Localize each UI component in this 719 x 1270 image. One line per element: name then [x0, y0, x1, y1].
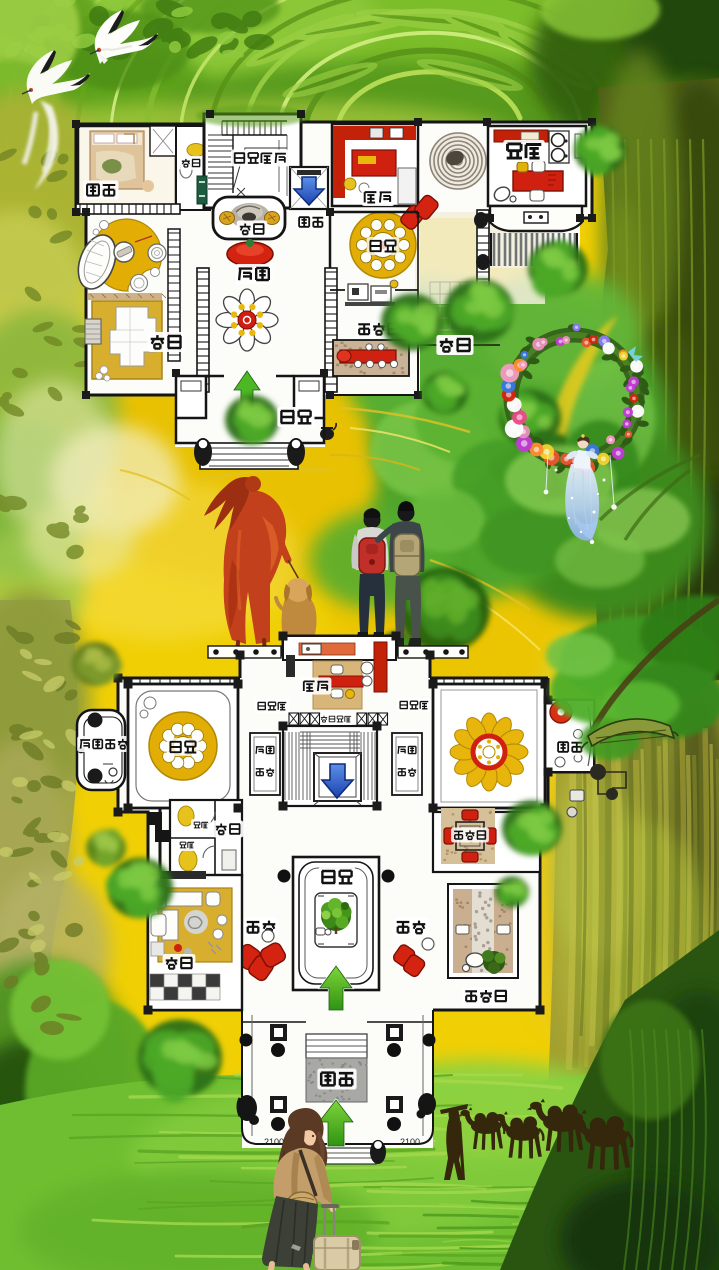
svg-text:2100: 2100	[400, 1137, 420, 1147]
svg-text:2100: 2100	[264, 1137, 284, 1147]
